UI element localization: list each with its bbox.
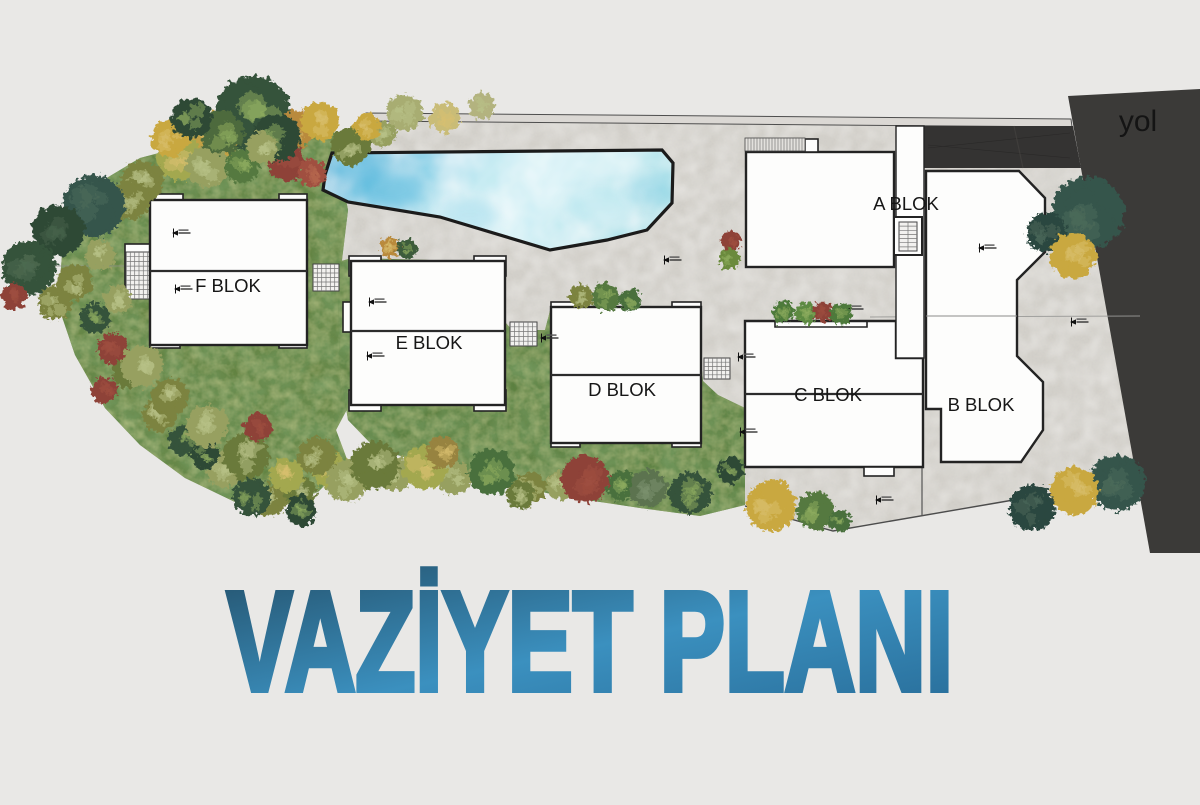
svg-text:A BLOK: A BLOK (873, 193, 939, 214)
svg-text:F BLOK: F BLOK (195, 275, 261, 296)
svg-text:D BLOK: D BLOK (588, 379, 657, 400)
svg-text:C BLOK: C BLOK (794, 384, 863, 405)
svg-text:yol: yol (1119, 105, 1157, 138)
svg-text:E BLOK: E BLOK (396, 332, 463, 353)
svg-text:VAZİYET PLANI: VAZİYET PLANI (227, 562, 953, 720)
svg-text:B BLOK: B BLOK (948, 394, 1015, 415)
